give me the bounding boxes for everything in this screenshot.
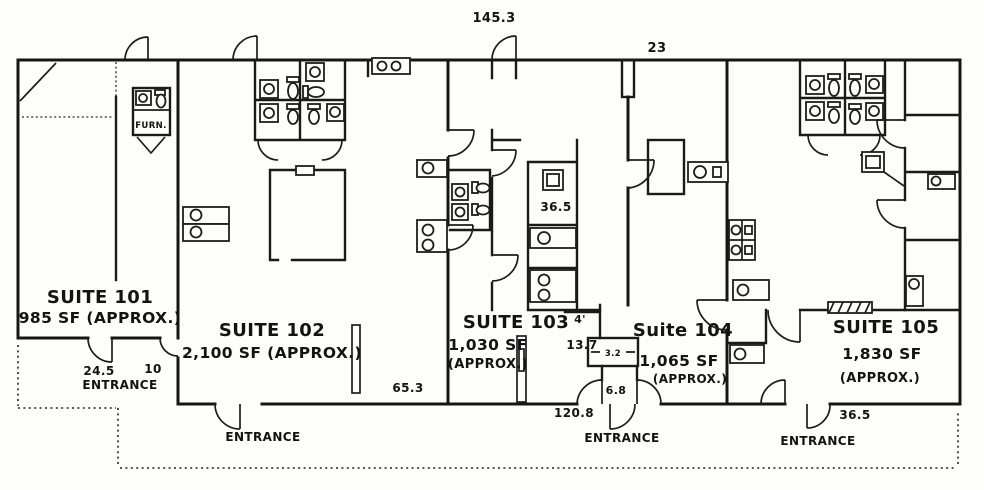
center-room-walls [270,170,345,260]
restroom-closet-103 [450,170,490,230]
door-arc-icon [448,225,473,250]
floor-plan-sheet: FURN. SUITE 101 985 SF (APPROX.) [0,0,984,490]
sink-icon [730,345,764,363]
door-arc-icon [807,404,830,428]
restroom-block-102 [255,60,345,160]
suite-105: SUITE 105 1,830 SF (APPROX.) [727,60,960,386]
rear-door-jambs [492,60,516,78]
door-arc-icon [88,338,112,362]
suite-103: 36.5 SUITE 103 1,030 SF (APPROX.) 4' 13.… [448,60,600,402]
wall-cabinet-icon [296,166,314,175]
door-arc-icon [492,255,518,281]
door-arc-icon [215,404,240,429]
toilet-icon [155,90,166,108]
interior-dotted-lines [22,62,116,117]
counter-icon [417,220,447,252]
suite-103-name: SUITE 103 [463,312,569,333]
toilet-icon [303,86,324,98]
suite-101: FURN. SUITE 101 985 SF (APPROX.) [19,62,182,327]
door-arc-icon [492,36,516,60]
dim-frontage-mid: 120.8 [554,406,594,420]
toilet-icon [828,74,840,96]
door-arc-icon [577,380,602,404]
dim-nook-depth: 13.7 [566,338,597,352]
sink-icon [806,76,824,94]
door-arc-icon [610,404,635,429]
counter-icon [183,224,229,241]
sink-icon [306,63,324,81]
toilet-icon [287,104,299,124]
toilet-icon [849,74,861,96]
counter-icon [530,228,576,248]
sink-icon [688,162,728,182]
vestibule-walls [602,366,637,380]
sink-icon [806,102,824,120]
dim-building-width: 145.3 [472,11,515,26]
sink-icon [260,80,278,98]
toilet-icon [472,182,490,193]
door-arc-icon [768,310,800,342]
restroom-block-105 [800,60,885,155]
sink-icon [327,104,344,121]
sink-icon [906,276,923,306]
dim-nook-width: 4' [574,313,586,326]
dim-closet-width: 3.2 [605,349,621,359]
dim-vestibule-width: 6.8 [606,384,627,397]
furnace-label: FURN. [135,121,167,131]
door-arc-icon [877,120,905,228]
sink-icon [452,184,468,200]
furnace-closet: FURN. [133,88,170,153]
sink-icon [928,174,955,189]
floor-plan-drawing: FURN. SUITE 101 985 SF (APPROX.) [0,0,984,490]
toilet-icon [828,102,840,123]
entrance-label-105: ENTRANCE [780,434,855,448]
suite-103-approx: (APPROX.) [448,357,528,372]
entrance-label-102: ENTRANCE [225,430,300,444]
dim-suite-104-width: 23 [648,41,667,56]
sink-icon [866,76,883,93]
suite-102-area: 2,100 SF (APPROX.) [182,344,362,362]
suite-103-area: 1,030 SF [448,336,527,354]
corner-diagonal [20,63,56,101]
door-arc-icon [492,150,516,176]
door-arc-icon [233,36,257,60]
furnace-flue-mark [137,137,165,153]
toilet-icon [308,104,320,124]
utility-grid-icon [729,220,755,260]
dim-entry-101-right: 10 [144,362,162,376]
toilet-icon [472,204,490,215]
counter-icon [183,207,229,224]
dim-entry-101-left: 24.5 [83,364,114,378]
sink-icon [452,204,468,220]
equipment-box-icon [543,170,563,190]
hatched-counter-icon [828,302,872,313]
sink-icon [260,104,278,122]
center-room-102 [270,166,345,260]
wall-stub-104 [622,60,634,97]
suite-104-area: 1,065 SF [639,352,718,370]
sink-icon [866,103,883,120]
sink-icon [136,91,151,105]
suite-105-approx: (APPROX.) [840,371,920,386]
sink-icon [733,280,769,300]
dim-frontage-right: 36.5 [839,408,870,422]
restroom-walls [255,60,345,140]
door-arc-icon [160,338,178,356]
suite-101-name: SUITE 101 [47,287,153,308]
suite-102-name: SUITE 102 [219,320,325,341]
dim-restroom-room: 36.5 [540,200,571,214]
counter-icon [530,270,576,302]
entrance-labels: ENTRANCE ENTRANCE ENTRANCE ENTRANCE [82,378,855,448]
suite-104-name: Suite 104 [633,320,733,341]
suite-104-approx: (APPROX.) [653,372,727,386]
suite-102: SUITE 102 2,100 SF (APPROX.) 65.3 [182,58,447,395]
suite-105-name: SUITE 105 [833,317,939,338]
door-arc-icon [448,130,474,156]
toilet-icon [287,77,299,99]
dim-suite-102-rear: 65.3 [392,381,423,395]
entrance-label-101: ENTRANCE [82,378,157,392]
double-sink-counter [368,58,410,76]
suite-105-area: 1,830 SF [842,345,921,363]
door-arc-icon [761,380,785,404]
suite-101-area: 985 SF (APPROX.) [19,309,182,327]
door-arc-icon [258,140,342,160]
entrance-label-103: ENTRANCE [584,431,659,445]
restroom-walls [800,60,885,135]
equipment-box-icon [862,152,904,186]
door-arc-icon [628,160,654,188]
door-arc-icon [125,37,148,60]
counter-icon [417,160,447,177]
toilet-icon [849,104,861,124]
